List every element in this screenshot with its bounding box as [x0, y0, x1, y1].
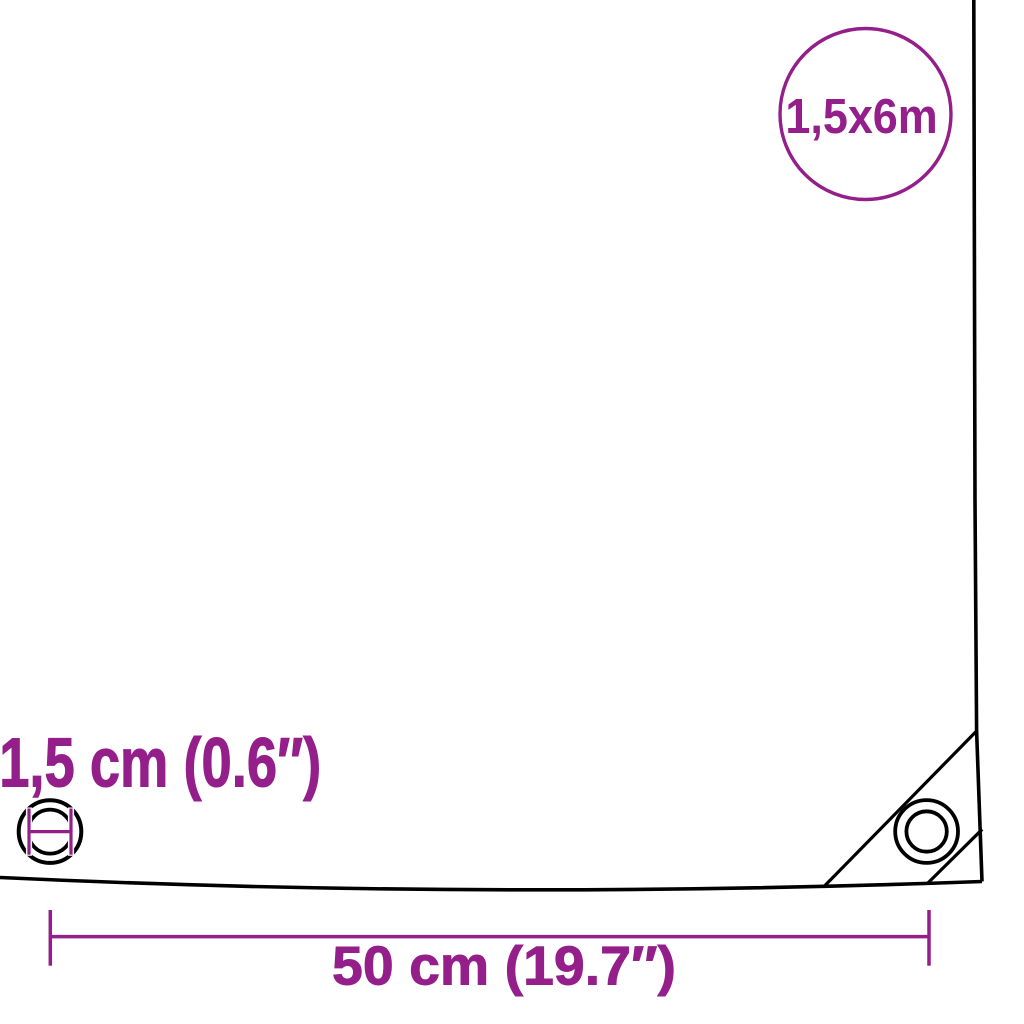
svg-text:1,5 cm (0.6″): 1,5 cm (0.6″) — [0, 723, 321, 801]
svg-text:1,5x6m: 1,5x6m — [785, 89, 937, 144]
svg-text:50 cm (19.7″): 50 cm (19.7″) — [332, 935, 676, 997]
